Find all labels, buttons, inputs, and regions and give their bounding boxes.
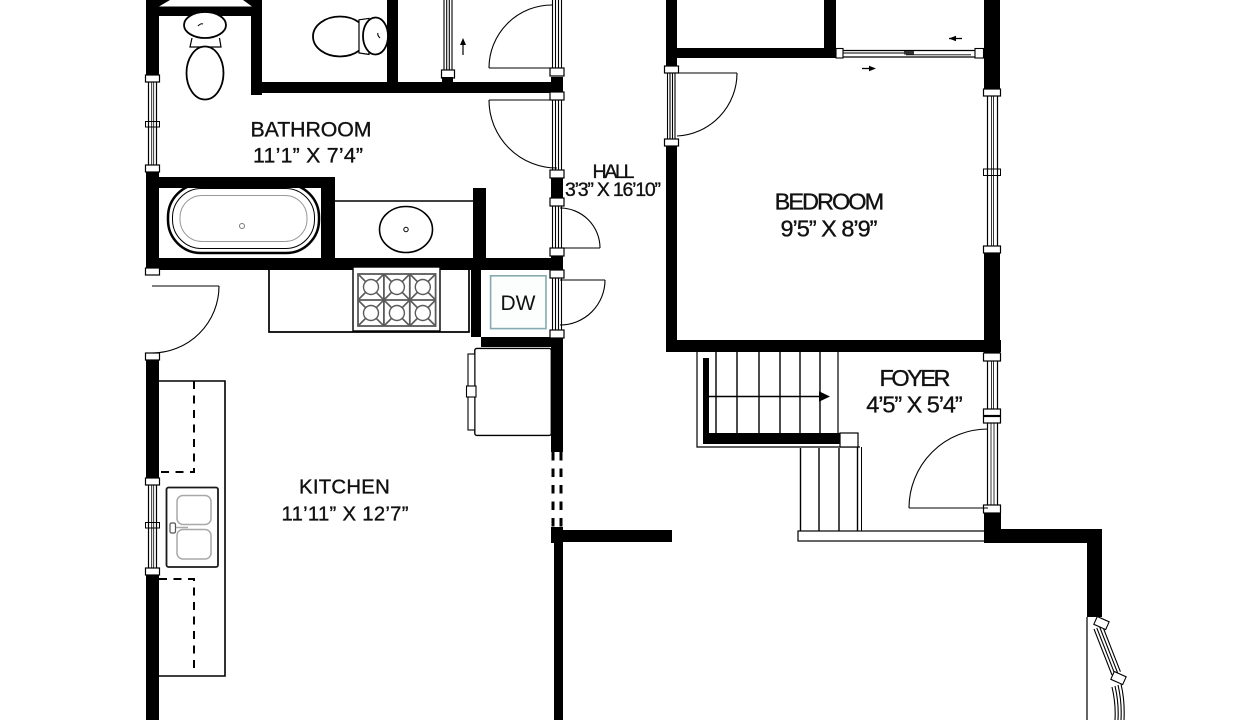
svg-text:4’5” X 5’4”: 4’5” X 5’4” xyxy=(866,391,963,417)
svg-text:BEDROOM: BEDROOM xyxy=(775,189,885,215)
svg-text:KITCHEN: KITCHEN xyxy=(299,477,390,499)
svg-text:9’5” X 8’9”: 9’5” X 8’9” xyxy=(781,215,878,241)
svg-text:BATHROOM: BATHROOM xyxy=(251,118,372,142)
svg-text:DW: DW xyxy=(501,292,536,315)
svg-text:11’1” X 7’4”: 11’1” X 7’4” xyxy=(253,144,363,168)
svg-text:3’3” X 16’10”: 3’3” X 16’10” xyxy=(565,179,661,201)
svg-text:11’11” X 12’7”: 11’11” X 12’7” xyxy=(282,504,409,526)
svg-text:FOYER: FOYER xyxy=(880,365,951,391)
